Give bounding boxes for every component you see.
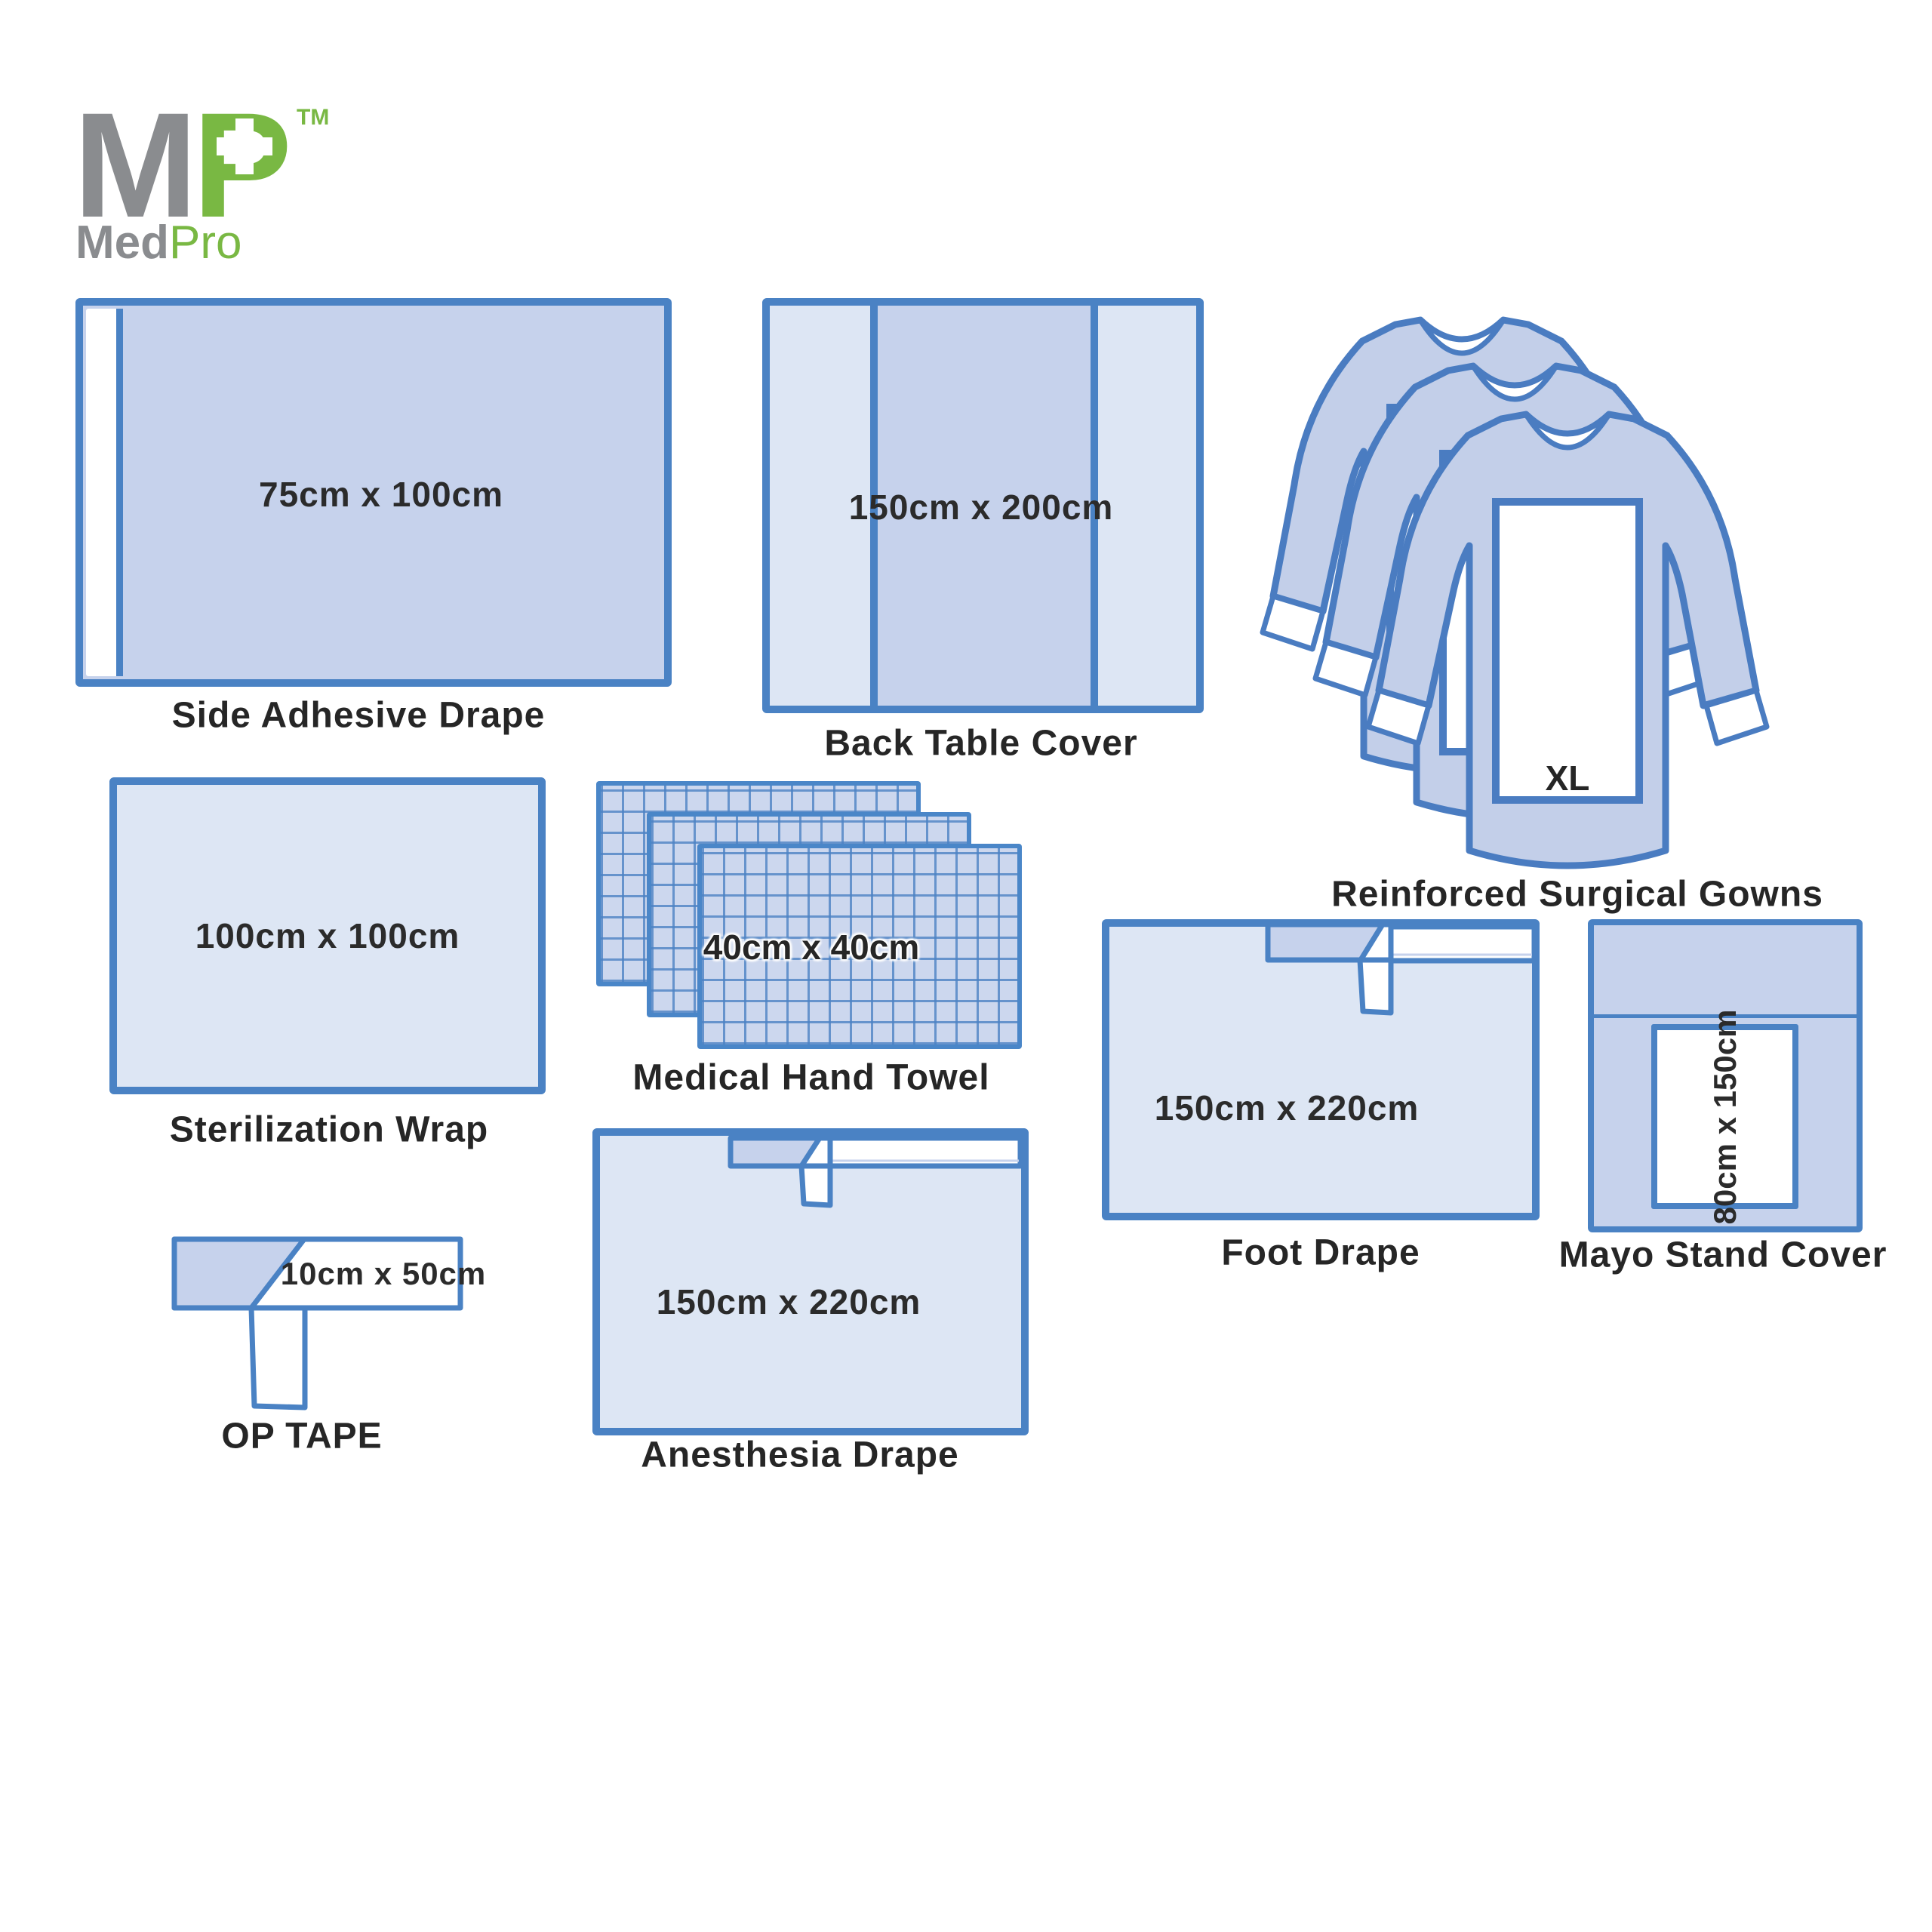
side-adhesive-caption: Side Adhesive Drape	[172, 695, 546, 737]
back-table-dimensions: 150cm x 200cm	[849, 487, 1114, 528]
gown-size-label: XL	[1546, 758, 1590, 798]
sterilization-dimensions: 100cm x 100cm	[195, 915, 460, 956]
logo-letter-m: M	[73, 82, 198, 226]
surgical-pack-sheet: M P TM MedPro 75cm x 100cm Side Adhesive…	[0, 0, 1932, 1932]
op-tape-liner-flap	[251, 1308, 305, 1407]
op-tape-dimensions: 10cm x 50cm	[281, 1256, 487, 1292]
mayo-dimensions: 80cm x 150cm	[1707, 1009, 1743, 1224]
foot-drape-caption: Foot Drape	[1221, 1232, 1420, 1274]
mayo-caption: Mayo Stand Cover	[1559, 1235, 1887, 1276]
surgical-gowns-graphic: XL	[1245, 291, 1819, 894]
brand-name: MedPro	[75, 216, 241, 269]
hand-towel-dimensions: 40cm x 40cm	[703, 927, 919, 968]
foot-drape-tab-graphic	[1260, 917, 1547, 1023]
brand-name-med: Med	[75, 217, 169, 269]
mayo-window-panel: 80cm x 150cm	[1651, 1024, 1798, 1209]
mayo-stand-cover-graphic: 80cm x 150cm	[1588, 919, 1863, 1232]
anesthesia-dimensions: 150cm x 220cm	[657, 1281, 921, 1322]
hand-towel-caption: Medical Hand Towel	[632, 1057, 989, 1099]
foot-drape-dimensions: 150cm x 220cm	[1155, 1088, 1420, 1128]
trademark-label: TM	[297, 105, 329, 130]
sterilization-caption: Sterilization Wrap	[170, 1109, 489, 1151]
anesthesia-tab-graphic	[724, 1132, 1034, 1215]
gowns-caption: Reinforced Surgical Gowns	[1331, 874, 1823, 915]
back-table-caption: Back Table Cover	[824, 723, 1137, 764]
anesthesia-caption: Anesthesia Drape	[641, 1435, 959, 1476]
medpro-logo: M P TM	[72, 64, 343, 226]
side-adhesive-dimensions: 75cm x 100cm	[259, 474, 503, 515]
op-tape-caption: OP TAPE	[221, 1416, 382, 1457]
brand-name-pro: Pro	[169, 217, 241, 269]
adhesive-strip	[86, 309, 123, 676]
